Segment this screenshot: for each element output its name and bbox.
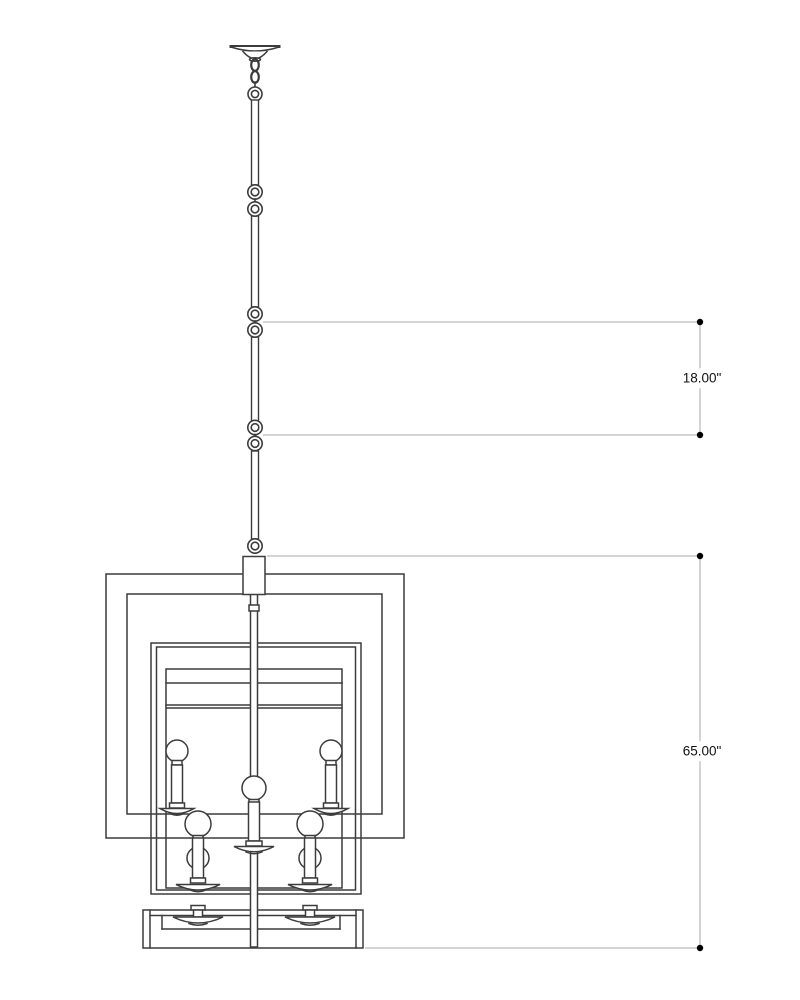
upper-left-bulb [160, 740, 194, 815]
rod-coupler-2 [248, 307, 262, 337]
upper-right-bulb [314, 740, 348, 815]
lower-right-bulb [288, 811, 332, 892]
chain-links [251, 59, 259, 83]
rod-coupler-1 [248, 185, 262, 216]
rod-coupler-3 [248, 420, 262, 450]
dimension-label-chain: 18.00" [679, 368, 726, 388]
fixture [106, 47, 404, 949]
chandelier-elevation-drawing [0, 0, 800, 1000]
fixture-loop [248, 539, 262, 553]
dimension-label-overall-height: 65.00" [679, 741, 726, 761]
lower-left-bulb [176, 811, 220, 892]
center-bulb [234, 776, 274, 854]
top-ring [248, 82, 262, 101]
center-stem [249, 594, 259, 947]
mounting-block [243, 557, 265, 595]
dimension-lines [263, 322, 700, 948]
dimension-drawing-canvas: 18.00" 65.00" [0, 0, 800, 1000]
